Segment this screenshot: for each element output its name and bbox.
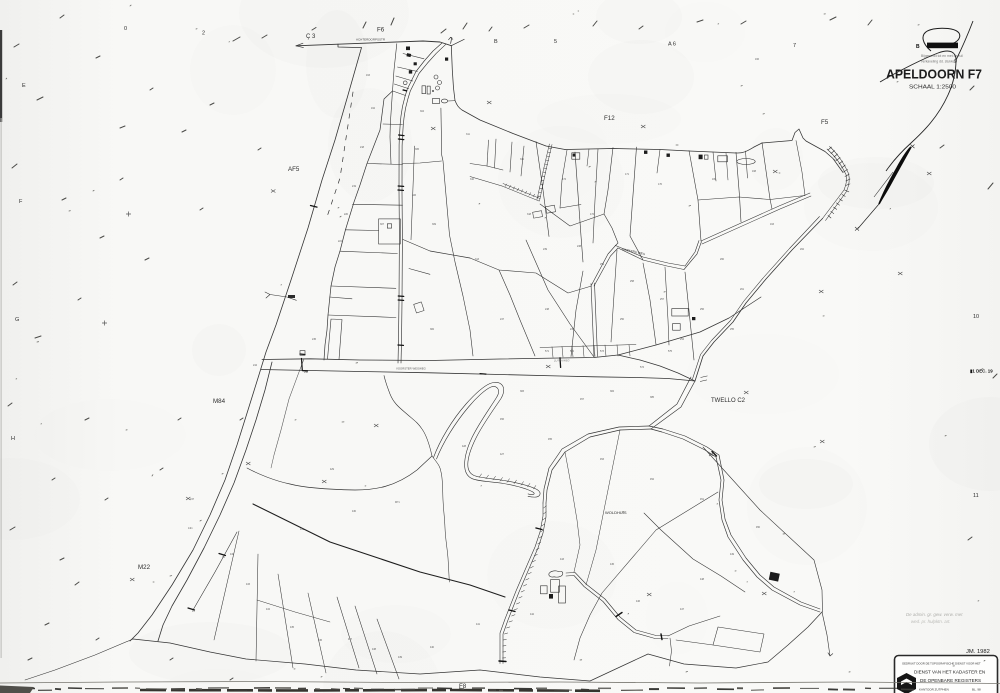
svg-text:305: 305 <box>415 148 420 151</box>
svg-text:457: 457 <box>580 398 585 401</box>
svg-text:434: 434 <box>266 608 271 611</box>
svg-text:449: 449 <box>730 553 735 556</box>
svg-text:306: 306 <box>412 194 417 197</box>
svg-text:254: 254 <box>680 338 685 341</box>
svg-text:443: 443 <box>560 558 565 561</box>
svg-text:DIENST VAN HET KADASTER EN: DIENST VAN HET KADASTER EN <box>914 670 985 675</box>
svg-text:311: 311 <box>466 133 470 136</box>
svg-text:430: 430 <box>352 510 357 513</box>
svg-text:163: 163 <box>366 74 371 77</box>
svg-text:441: 441 <box>476 623 481 626</box>
svg-text:163: 163 <box>770 223 775 226</box>
svg-text:ZUTPH.WEG: ZUTPH.WEG <box>554 358 570 362</box>
svg-text:171: 171 <box>625 173 630 176</box>
svg-text:verkaveling dd. stukken: verkaveling dd. stukken <box>921 60 957 64</box>
svg-text:310: 310 <box>470 178 475 181</box>
svg-text:571: 571 <box>545 350 550 353</box>
svg-text:261: 261 <box>740 288 745 291</box>
svg-text:BL. 98: BL. 98 <box>972 687 981 691</box>
svg-text:ACHTERDORPSSTR: ACHTERDORPSSTR <box>356 37 386 41</box>
svg-text:TWELLO C2: TWELLO C2 <box>711 397 745 404</box>
svg-text:DE OPENBARE REGISTERS: DE OPENBARE REGISTERS <box>920 678 981 683</box>
svg-text:219: 219 <box>352 185 357 188</box>
svg-text:385: 385 <box>650 396 655 399</box>
svg-text:435: 435 <box>290 626 295 629</box>
svg-text:5: 5 <box>554 39 557 45</box>
svg-text:247: 247 <box>190 498 195 501</box>
svg-text:572: 572 <box>570 350 575 353</box>
svg-text:446: 446 <box>636 600 641 603</box>
svg-text:166: 166 <box>755 58 760 61</box>
svg-text:F6: F6 <box>377 27 385 34</box>
svg-text:318: 318 <box>527 213 532 216</box>
svg-text:313: 313 <box>475 258 480 261</box>
svg-text:G: G <box>15 317 19 323</box>
svg-text:573: 573 <box>600 350 605 353</box>
svg-text:262: 262 <box>800 248 805 251</box>
svg-text:7: 7 <box>793 43 796 49</box>
svg-text:436: 436 <box>318 639 323 642</box>
svg-text:KANTOOR ZUTPHEN: KANTOOR ZUTPHEN <box>919 687 949 691</box>
svg-text:10: 10 <box>973 314 979 320</box>
svg-text:445: 445 <box>610 563 615 566</box>
svg-text:428: 428 <box>462 445 467 448</box>
svg-text:De admin. gr. gew. verw. met: De admin. gr. gew. verw. met <box>906 612 963 617</box>
svg-text:F12: F12 <box>604 115 615 122</box>
svg-text:WOLDHUIS: WOLDHUIS <box>605 510 627 515</box>
svg-text:258: 258 <box>630 280 635 283</box>
svg-text:AF5: AF5 <box>288 166 300 173</box>
svg-text:439: 439 <box>398 656 403 659</box>
svg-text:A 6: A 6 <box>668 42 676 48</box>
svg-text:429: 429 <box>330 468 335 471</box>
svg-text:433: 433 <box>246 583 251 586</box>
svg-text:13m: 13m <box>188 527 193 530</box>
svg-text:H: H <box>11 436 15 442</box>
svg-text:GEDRUKT DOOR DE TOPOGRAFISCHE: GEDRUKT DOOR DE TOPOGRAFISCHE DIENST VOO… <box>902 661 981 665</box>
svg-text:382: 382 <box>430 328 435 331</box>
svg-text:304: 304 <box>420 110 425 113</box>
svg-text:168: 168 <box>752 170 757 173</box>
svg-text:244: 244 <box>253 364 258 367</box>
svg-text:wed. pr. hulpktn. art.: wed. pr. hulpktn. art. <box>911 619 951 624</box>
svg-text:456: 456 <box>500 418 505 421</box>
svg-text:JM. 1982: JM. 1982 <box>966 649 990 655</box>
svg-text:VOORSTER WEGWEG: VOORSTER WEGWEG <box>396 366 426 370</box>
svg-text:Ç 3: Ç 3 <box>306 34 316 40</box>
svg-text:SCHAAL 1:2500: SCHAAL 1:2500 <box>909 85 956 91</box>
svg-text:169: 169 <box>712 178 717 181</box>
svg-text:438: 438 <box>372 648 377 651</box>
svg-text:256: 256 <box>700 308 705 311</box>
svg-text:238: 238 <box>577 245 582 248</box>
svg-text:452: 452 <box>650 478 655 481</box>
svg-text:447: 447 <box>680 608 685 611</box>
svg-text:0: 0 <box>124 26 127 32</box>
svg-text:384: 384 <box>610 390 615 393</box>
svg-text:218: 218 <box>360 146 365 149</box>
svg-text:E: E <box>22 83 26 89</box>
svg-text:B: B <box>916 44 920 50</box>
svg-text:455: 455 <box>548 438 553 441</box>
svg-text:F5: F5 <box>821 119 829 126</box>
svg-text:246: 246 <box>304 371 309 374</box>
svg-text:312: 312 <box>520 158 525 161</box>
svg-text:309: 309 <box>432 223 437 226</box>
svg-text:448: 448 <box>700 578 705 581</box>
svg-text:575: 575 <box>668 350 673 353</box>
svg-text:220: 220 <box>344 213 349 216</box>
svg-text:437: 437 <box>348 638 353 641</box>
svg-text:239: 239 <box>543 248 548 251</box>
svg-text:M22: M22 <box>138 564 151 571</box>
svg-text:248: 248 <box>545 308 550 311</box>
svg-text:▮1 DEC. 19: ▮1 DEC. 19 <box>970 369 993 374</box>
svg-text:162: 162 <box>371 107 376 110</box>
svg-text:2: 2 <box>202 31 205 37</box>
svg-text:453: 453 <box>600 458 605 461</box>
svg-text:307: 307 <box>380 223 385 226</box>
svg-text:11: 11 <box>973 493 979 499</box>
svg-text:221: 221 <box>338 240 343 243</box>
svg-text:172: 172 <box>590 213 595 216</box>
svg-text:170: 170 <box>658 183 663 186</box>
svg-text:250: 250 <box>620 318 625 321</box>
svg-text:442: 442 <box>530 613 535 616</box>
svg-text:255: 255 <box>730 328 735 331</box>
svg-text:574: 574 <box>640 366 645 369</box>
svg-text:432: 432 <box>230 553 235 556</box>
svg-text:249: 249 <box>570 328 575 331</box>
svg-text:APELDOORN F7: APELDOORN F7 <box>886 67 982 82</box>
svg-text:247: 247 <box>500 318 505 321</box>
svg-text:451: 451 <box>700 498 705 501</box>
svg-text:M71: M71 <box>395 501 400 504</box>
svg-text:259: 259 <box>600 263 605 266</box>
svg-text:260: 260 <box>720 258 725 261</box>
svg-text:257: 257 <box>660 298 665 301</box>
svg-text:B: B <box>494 39 498 45</box>
svg-text:431: 431 <box>300 528 305 531</box>
svg-text:383: 383 <box>520 390 525 393</box>
svg-text:440: 440 <box>430 646 435 649</box>
svg-text:427: 427 <box>500 453 505 456</box>
svg-text:174: 174 <box>562 178 567 181</box>
svg-text:450: 450 <box>756 526 761 529</box>
svg-text:M84: M84 <box>213 398 226 405</box>
svg-text:245: 245 <box>312 338 317 341</box>
